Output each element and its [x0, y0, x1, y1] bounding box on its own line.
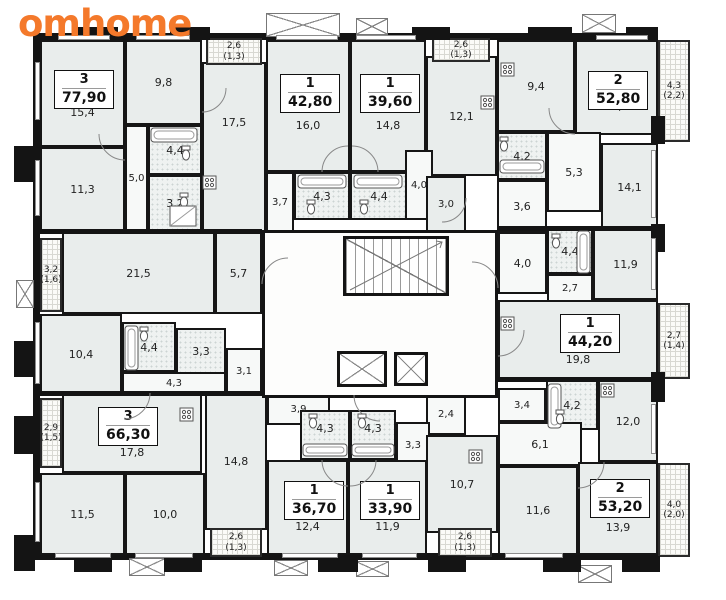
apt5-bathroom: 4,4	[122, 322, 176, 372]
apt6-bathroom: 4,3	[300, 410, 350, 460]
wall-segment	[498, 226, 658, 231]
apt5-bedroom-2: 10,0	[125, 473, 205, 555]
apt8-area-badge[interactable]: 2 53,20	[590, 479, 650, 518]
apt7-area-badge[interactable]: 1 33,90	[360, 481, 420, 520]
vent-shaft	[129, 558, 165, 576]
apt5-balcony: 2,9 (1,5)	[40, 398, 62, 468]
pillar	[164, 556, 202, 572]
window	[651, 150, 656, 218]
apt4-hall: 4,0	[498, 232, 547, 294]
apt0-area-badge[interactable]: 3 77,90	[54, 70, 114, 109]
apt0-bedroom-3: 9,8	[125, 40, 202, 125]
pillar	[14, 416, 35, 454]
vent-shaft	[356, 561, 389, 577]
elevator-1	[337, 351, 387, 387]
apt0-bathroom: 4,4	[148, 125, 202, 175]
wall-segment	[498, 377, 658, 382]
apt0-living: 21,5	[62, 232, 215, 314]
floor-plan: omhome 15,4 9,8 11,3 5,0 4,4 3,2 21,5 5,…	[0, 0, 726, 600]
apt4-bathroom: 4,4	[547, 228, 593, 274]
vent-shaft	[582, 14, 616, 33]
vent-shaft	[16, 280, 34, 308]
pillar	[543, 556, 581, 572]
apt4-area-badge[interactable]: 1 44,20	[560, 314, 620, 353]
pillar	[651, 116, 665, 144]
window	[55, 553, 111, 558]
apt0-bedroom-2: 11,3	[40, 147, 125, 232]
omhome-logo[interactable]: omhome	[18, 2, 191, 45]
apt1-balcony: 2,6 (1,3)	[206, 38, 262, 65]
apt1-bathroom: 4,3	[294, 172, 350, 220]
pillar	[528, 27, 572, 40]
apt4-hall-2: 2,7	[547, 274, 593, 302]
wall-segment	[35, 391, 265, 396]
vent-shaft	[266, 13, 340, 37]
window	[651, 404, 656, 454]
apt8-hall-2: 3,4	[498, 388, 546, 422]
apt2-kitchen: 12,1	[426, 56, 497, 176]
apt2-area-badge[interactable]: 1 39,60	[360, 74, 420, 113]
pillar	[14, 341, 35, 377]
apt6-area-badge[interactable]: 1 36,70	[284, 481, 344, 520]
apt3-area-badge[interactable]: 2 52,80	[588, 71, 648, 110]
apt3-bedroom-2: 14,1	[601, 143, 658, 232]
window	[596, 35, 648, 40]
apt2-balcony: 2,6 (1,3)	[432, 38, 490, 62]
apt0-kitchen: 5,7	[215, 232, 262, 314]
wall-segment	[35, 229, 262, 234]
apt7-hall-2: 2,4	[426, 393, 466, 435]
apt4-balcony: 2,7 (1,4)	[658, 303, 690, 379]
apt7-bathroom: 4,3	[350, 410, 396, 460]
apt2-hall-2: 3,0	[426, 176, 466, 232]
window	[282, 553, 338, 558]
stairwell	[343, 236, 449, 296]
window	[651, 238, 656, 290]
apt1-hall: 3,7	[266, 172, 294, 232]
apt5-area-badge[interactable]: 3 66,30	[98, 407, 158, 446]
apt5-bedroom-3: 10,4	[40, 314, 122, 394]
apt3-hall: 5,3	[547, 132, 601, 212]
apt6-bedroom: 14,8	[205, 393, 267, 530]
pillar	[428, 556, 466, 572]
apt1-area-badge[interactable]: 1 42,80	[280, 74, 340, 113]
window	[35, 62, 40, 120]
vent-shaft	[356, 18, 388, 35]
apt8-kitchen: 12,0	[598, 380, 658, 462]
window	[35, 482, 40, 542]
apt8-balcony: 4,0 (2,0)	[658, 463, 690, 557]
apt5-wc: 3,3	[176, 328, 226, 374]
apt7-kitchen: 10,7	[426, 435, 498, 533]
vent-shaft	[274, 560, 308, 576]
pillar	[651, 372, 665, 402]
apt4-bedroom: 11,9	[593, 228, 658, 300]
apt2-bathroom: 4,4	[350, 172, 408, 220]
window	[356, 35, 416, 40]
apt3-hall-2: 3,6	[497, 180, 547, 232]
pillar	[74, 556, 112, 572]
apt6-balcony: 2,6 (1,3)	[210, 528, 262, 557]
pillar	[14, 535, 35, 571]
window	[135, 553, 193, 558]
pillar	[318, 556, 358, 572]
apt0-hall: 5,0	[125, 125, 148, 232]
apt0-balcony: 3,2 (1,6)	[40, 238, 62, 312]
apt8-bedroom-2: 11,6	[498, 466, 578, 555]
window	[505, 553, 563, 558]
apt5-bedroom-1: 11,5	[40, 473, 125, 555]
window	[35, 160, 40, 216]
apt0-wc: 3,2	[148, 175, 202, 232]
apt3-kitchen: 9,4	[497, 40, 575, 132]
elevator-2	[394, 352, 428, 386]
vent-shaft	[578, 565, 612, 583]
window	[35, 322, 40, 384]
apt8-hall: 6,1	[498, 422, 582, 466]
pillar	[14, 146, 35, 182]
apt7-balcony: 2,6 (1,3)	[438, 528, 492, 557]
apt5-hall-2: 3,1	[226, 348, 262, 394]
window	[362, 553, 417, 558]
pillar	[622, 556, 660, 572]
apt1-living-kitchen: 17,5	[202, 62, 266, 232]
apt3-bathroom: 4,2	[497, 132, 547, 180]
pillar	[412, 27, 450, 40]
window	[276, 35, 338, 40]
